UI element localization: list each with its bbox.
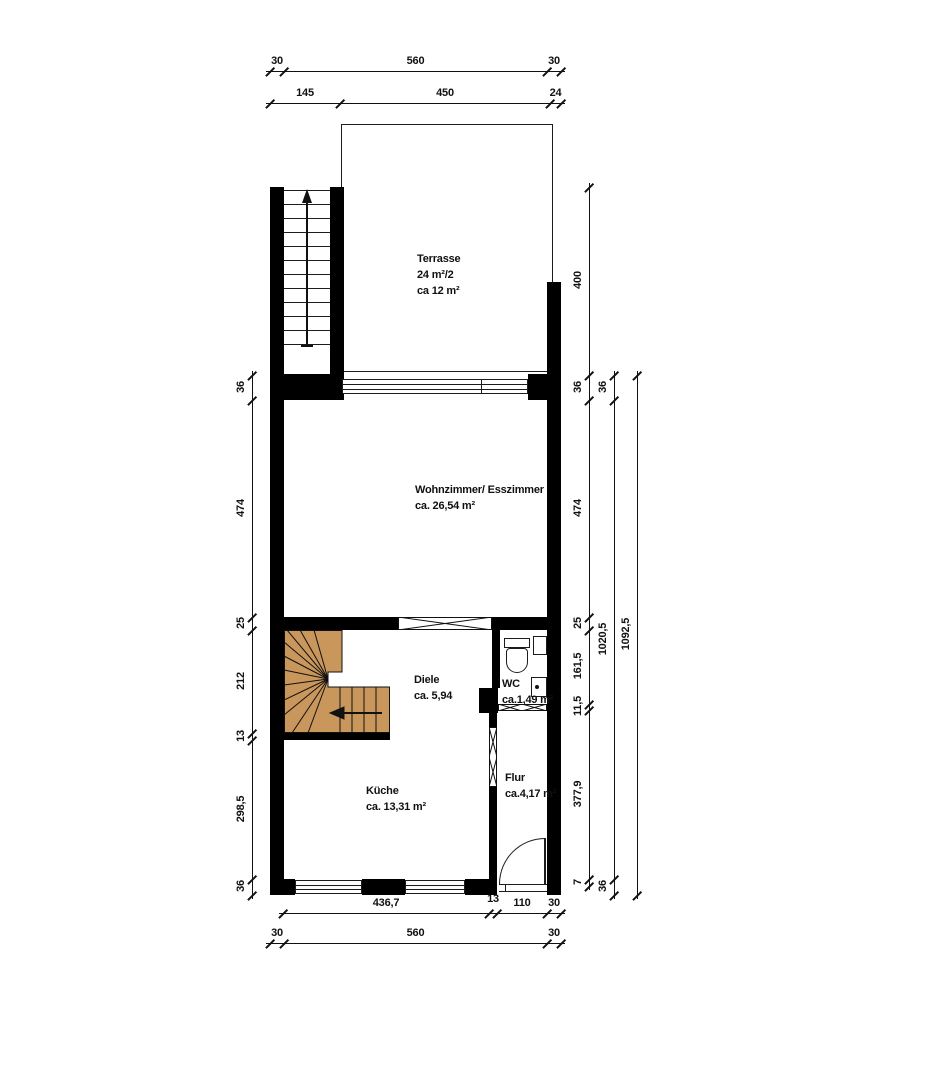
dimension-chains: 305603014545024364742521213298,536400364… (0, 0, 944, 1080)
dim-chain-bottom-outer: 3056030 (0, 0, 944, 1080)
dim-label: 560 (386, 927, 446, 939)
floor-plan-canvas: Terrasse 24 m²/2 ca 12 m² Wohnzimmer/ Es… (0, 0, 944, 1080)
dim-label: 30 (247, 927, 307, 939)
dim-label: 30 (524, 927, 584, 939)
dim-line (266, 943, 565, 944)
